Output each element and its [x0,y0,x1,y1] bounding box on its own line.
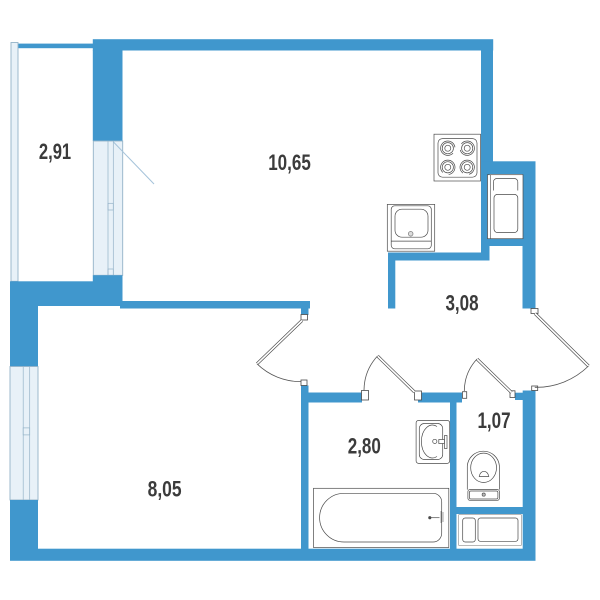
svg-text:3,08: 3,08 [445,292,478,317]
svg-text:2,80: 2,80 [348,434,381,459]
svg-text:10,65: 10,65 [268,151,311,176]
svg-text:1,07: 1,07 [477,409,510,434]
svg-text:2,91: 2,91 [39,140,71,165]
svg-text:8,05: 8,05 [148,477,182,502]
